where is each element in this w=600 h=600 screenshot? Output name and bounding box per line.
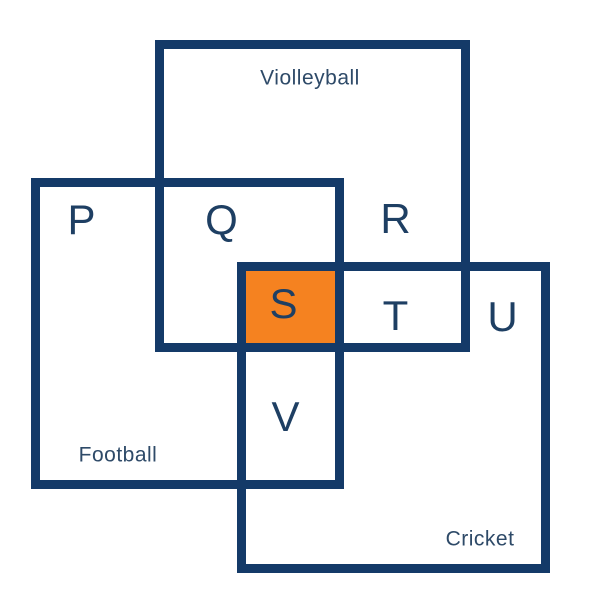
region-u-label: U xyxy=(487,296,518,338)
region-p-label: P xyxy=(67,199,96,241)
region-q-label: Q xyxy=(205,199,239,241)
volleyball-set-label: Violleyball xyxy=(260,68,360,89)
region-v-label: V xyxy=(271,396,300,438)
region-r-label: R xyxy=(380,198,411,240)
region-s-label: S xyxy=(269,283,298,325)
cricket-set-label: Cricket xyxy=(446,529,515,550)
football-set-label: Football xyxy=(79,445,158,466)
venn-diagram: Violleyball Football Cricket P Q R S T U… xyxy=(0,0,600,600)
region-t-label: T xyxy=(383,295,410,337)
